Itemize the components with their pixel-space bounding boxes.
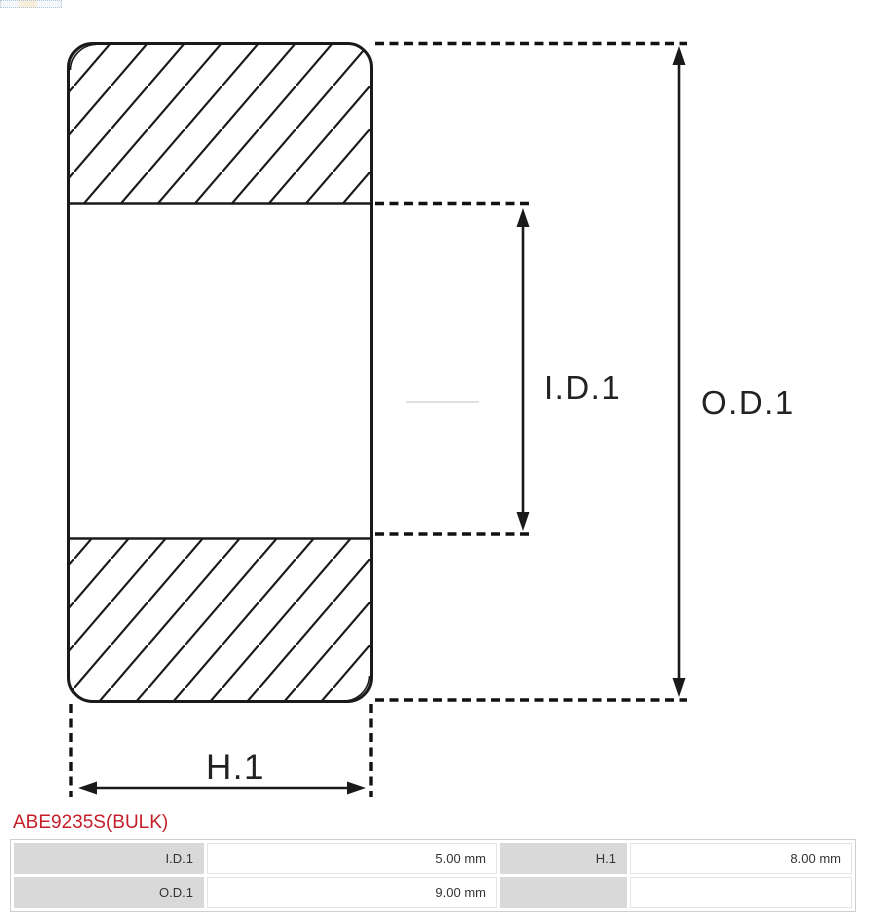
spec-value-cell-h: 8.00 mm (630, 843, 852, 874)
product-drawing-page: I.D.1 O.D.1 H.1 ABE9235S(BULK) I.D.1 5.0… (0, 0, 871, 913)
spec-label-cell-h: H.1 (500, 843, 627, 874)
id-dimension-label: I.D.1 (544, 369, 621, 406)
spec-label-cell-empty (500, 877, 627, 908)
spec-label-cell-id: I.D.1 (14, 843, 204, 874)
spec-value-cell-od: 9.00 mm (207, 877, 497, 908)
spec-label-cell-od: O.D.1 (14, 877, 204, 908)
spec-table-row: I.D.1 5.00 mm H.1 8.00 mm (14, 843, 852, 874)
od-dimension-label: O.D.1 (701, 384, 795, 421)
spec-value-cell-id: 5.00 mm (207, 843, 497, 874)
id-dimension-arrow (517, 208, 530, 531)
spec-table: I.D.1 5.00 mm H.1 8.00 mm O.D.1 9.00 mm (10, 839, 856, 912)
spec-value-cell-empty (630, 877, 852, 908)
od-dimension-arrow (673, 46, 686, 697)
outer-ring-bottom-hatch (68, 539, 373, 704)
outer-ring-top-hatch (68, 42, 373, 204)
bearing-body (68, 42, 479, 704)
part-number: ABE9235S(BULK) (13, 812, 168, 834)
spec-table-row: O.D.1 9.00 mm (14, 877, 852, 908)
h-dimension-label: H.1 (206, 748, 265, 787)
bearing-diagram: I.D.1 O.D.1 H.1 (0, 0, 871, 808)
